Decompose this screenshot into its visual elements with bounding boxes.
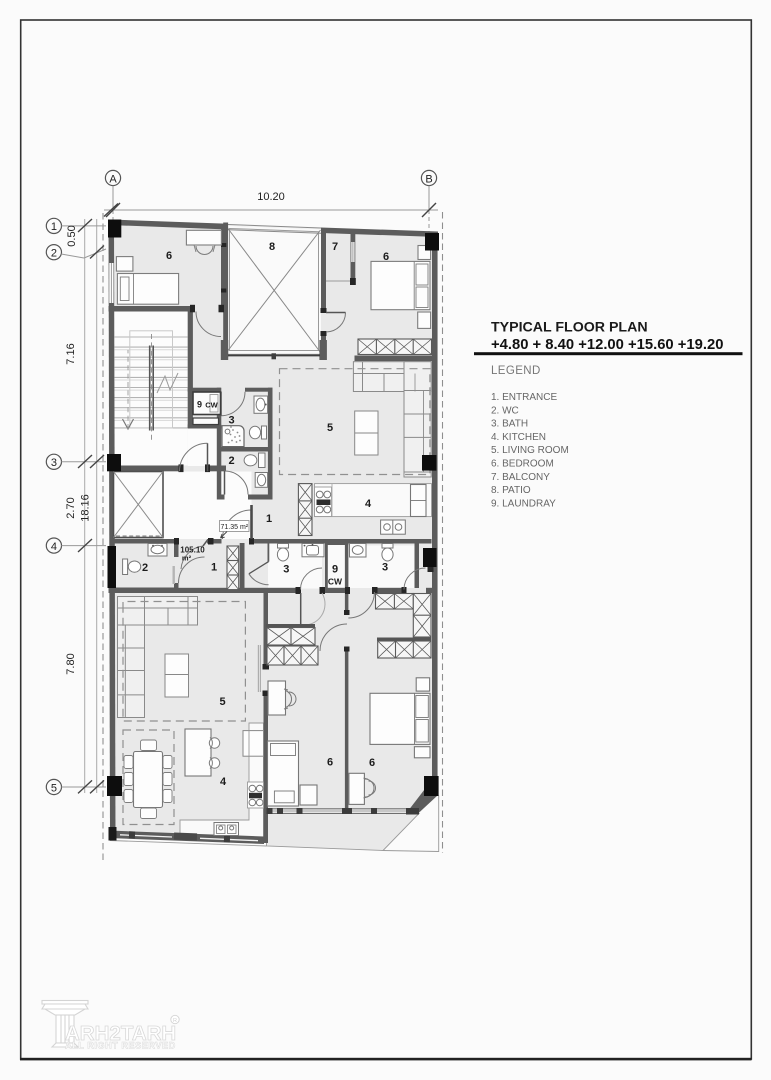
- svg-text:9. LAUNDRAY: 9. LAUNDRAY: [491, 498, 556, 509]
- svg-text:7. BALCONY: 7. BALCONY: [491, 472, 550, 483]
- svg-text:4: 4: [51, 541, 57, 553]
- svg-text:7.80: 7.80: [65, 653, 77, 674]
- svg-text:A: A: [109, 173, 117, 185]
- svg-text:5. LIVING ROOM: 5. LIVING ROOM: [491, 445, 569, 456]
- svg-text:4: 4: [220, 776, 227, 788]
- svg-text:6: 6: [369, 757, 375, 769]
- svg-text:R: R: [173, 1018, 177, 1024]
- svg-text:1: 1: [211, 562, 217, 574]
- svg-text:6: 6: [327, 757, 333, 769]
- svg-text:LEGEND: LEGEND: [491, 365, 541, 377]
- svg-text:5: 5: [327, 422, 333, 434]
- svg-text:0.50: 0.50: [66, 225, 78, 246]
- svg-text:3. BATH: 3. BATH: [491, 419, 528, 430]
- svg-text:3: 3: [382, 562, 388, 574]
- svg-text:m²: m²: [182, 554, 192, 563]
- svg-text:4. KITCHEN: 4. KITCHEN: [491, 432, 546, 443]
- svg-text:9: 9: [197, 400, 202, 410]
- svg-text:1: 1: [51, 221, 57, 233]
- svg-text:2: 2: [228, 455, 234, 467]
- svg-text:TYPICAL FLOOR PLAN: TYPICAL FLOOR PLAN: [491, 320, 648, 336]
- svg-text:71.35 m²: 71.35 m²: [220, 524, 248, 531]
- svg-text:8. PATIO: 8. PATIO: [491, 485, 531, 496]
- svg-text:9: 9: [332, 564, 338, 576]
- svg-text:CW: CW: [328, 577, 343, 587]
- svg-text:5: 5: [51, 782, 57, 794]
- svg-text:7.16: 7.16: [65, 343, 77, 364]
- svg-text:2: 2: [142, 562, 148, 574]
- svg-text:8: 8: [269, 241, 275, 253]
- svg-text:10.20: 10.20: [257, 191, 285, 203]
- svg-text:B: B: [425, 173, 432, 185]
- svg-text:+4.80 + 8.40 +12.00 +15.60 +19: +4.80 + 8.40 +12.00 +15.60 +19.20: [491, 337, 723, 353]
- svg-text:6: 6: [166, 250, 172, 262]
- svg-text:2.70: 2.70: [65, 497, 77, 518]
- svg-text:3: 3: [51, 457, 57, 469]
- svg-text:1. ENTRANCE: 1. ENTRANCE: [491, 392, 557, 403]
- svg-text:ALL RIGHT RESERVED: ALL RIGHT RESERVED: [65, 1041, 176, 1051]
- svg-text:2: 2: [51, 248, 57, 260]
- svg-text:6. BEDROOM: 6. BEDROOM: [491, 459, 554, 470]
- svg-text:2. WC: 2. WC: [491, 405, 519, 416]
- svg-text:4: 4: [365, 498, 372, 510]
- svg-text:6: 6: [383, 251, 389, 263]
- svg-text:3: 3: [283, 564, 289, 576]
- svg-text:18.16: 18.16: [80, 494, 92, 522]
- svg-text:1: 1: [266, 513, 272, 525]
- svg-text:3: 3: [228, 415, 234, 427]
- svg-text:7: 7: [332, 241, 338, 253]
- svg-text:CW: CW: [205, 401, 218, 410]
- svg-text:5: 5: [219, 696, 225, 708]
